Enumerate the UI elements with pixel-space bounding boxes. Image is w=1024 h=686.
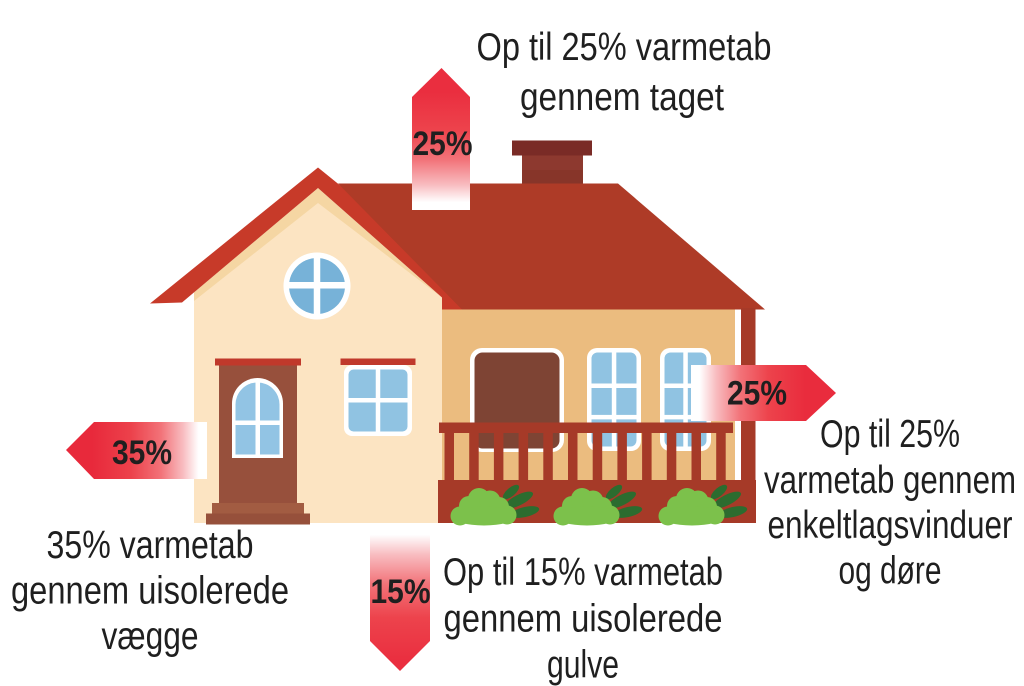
svg-text:vægge: vægge	[102, 615, 199, 658]
svg-text:Op til 25% varmetab: Op til 25% varmetab	[477, 26, 772, 69]
svg-text:35% varmetab: 35% varmetab	[47, 524, 254, 567]
svg-text:gennem taget: gennem taget	[520, 76, 724, 119]
svg-text:gennem uisolerede: gennem uisolerede	[11, 570, 289, 613]
svg-text:gennem uisolerede: gennem uisolerede	[444, 598, 723, 641]
svg-text:og døre: og døre	[839, 550, 942, 593]
svg-text:Op til 15% varmetab: Op til 15% varmetab	[443, 551, 723, 594]
svg-text:25%: 25%	[727, 375, 787, 413]
svg-text:enkeltlagsvinduer: enkeltlagsvinduer	[768, 504, 1013, 547]
svg-text:gulve: gulve	[547, 644, 619, 686]
svg-text:35%: 35%	[112, 434, 172, 472]
svg-text:15%: 15%	[371, 573, 431, 611]
svg-text:Op til 25%: Op til 25%	[820, 413, 960, 456]
svg-text:25%: 25%	[413, 125, 473, 163]
svg-text:varmetab gennem: varmetab gennem	[764, 459, 1016, 502]
